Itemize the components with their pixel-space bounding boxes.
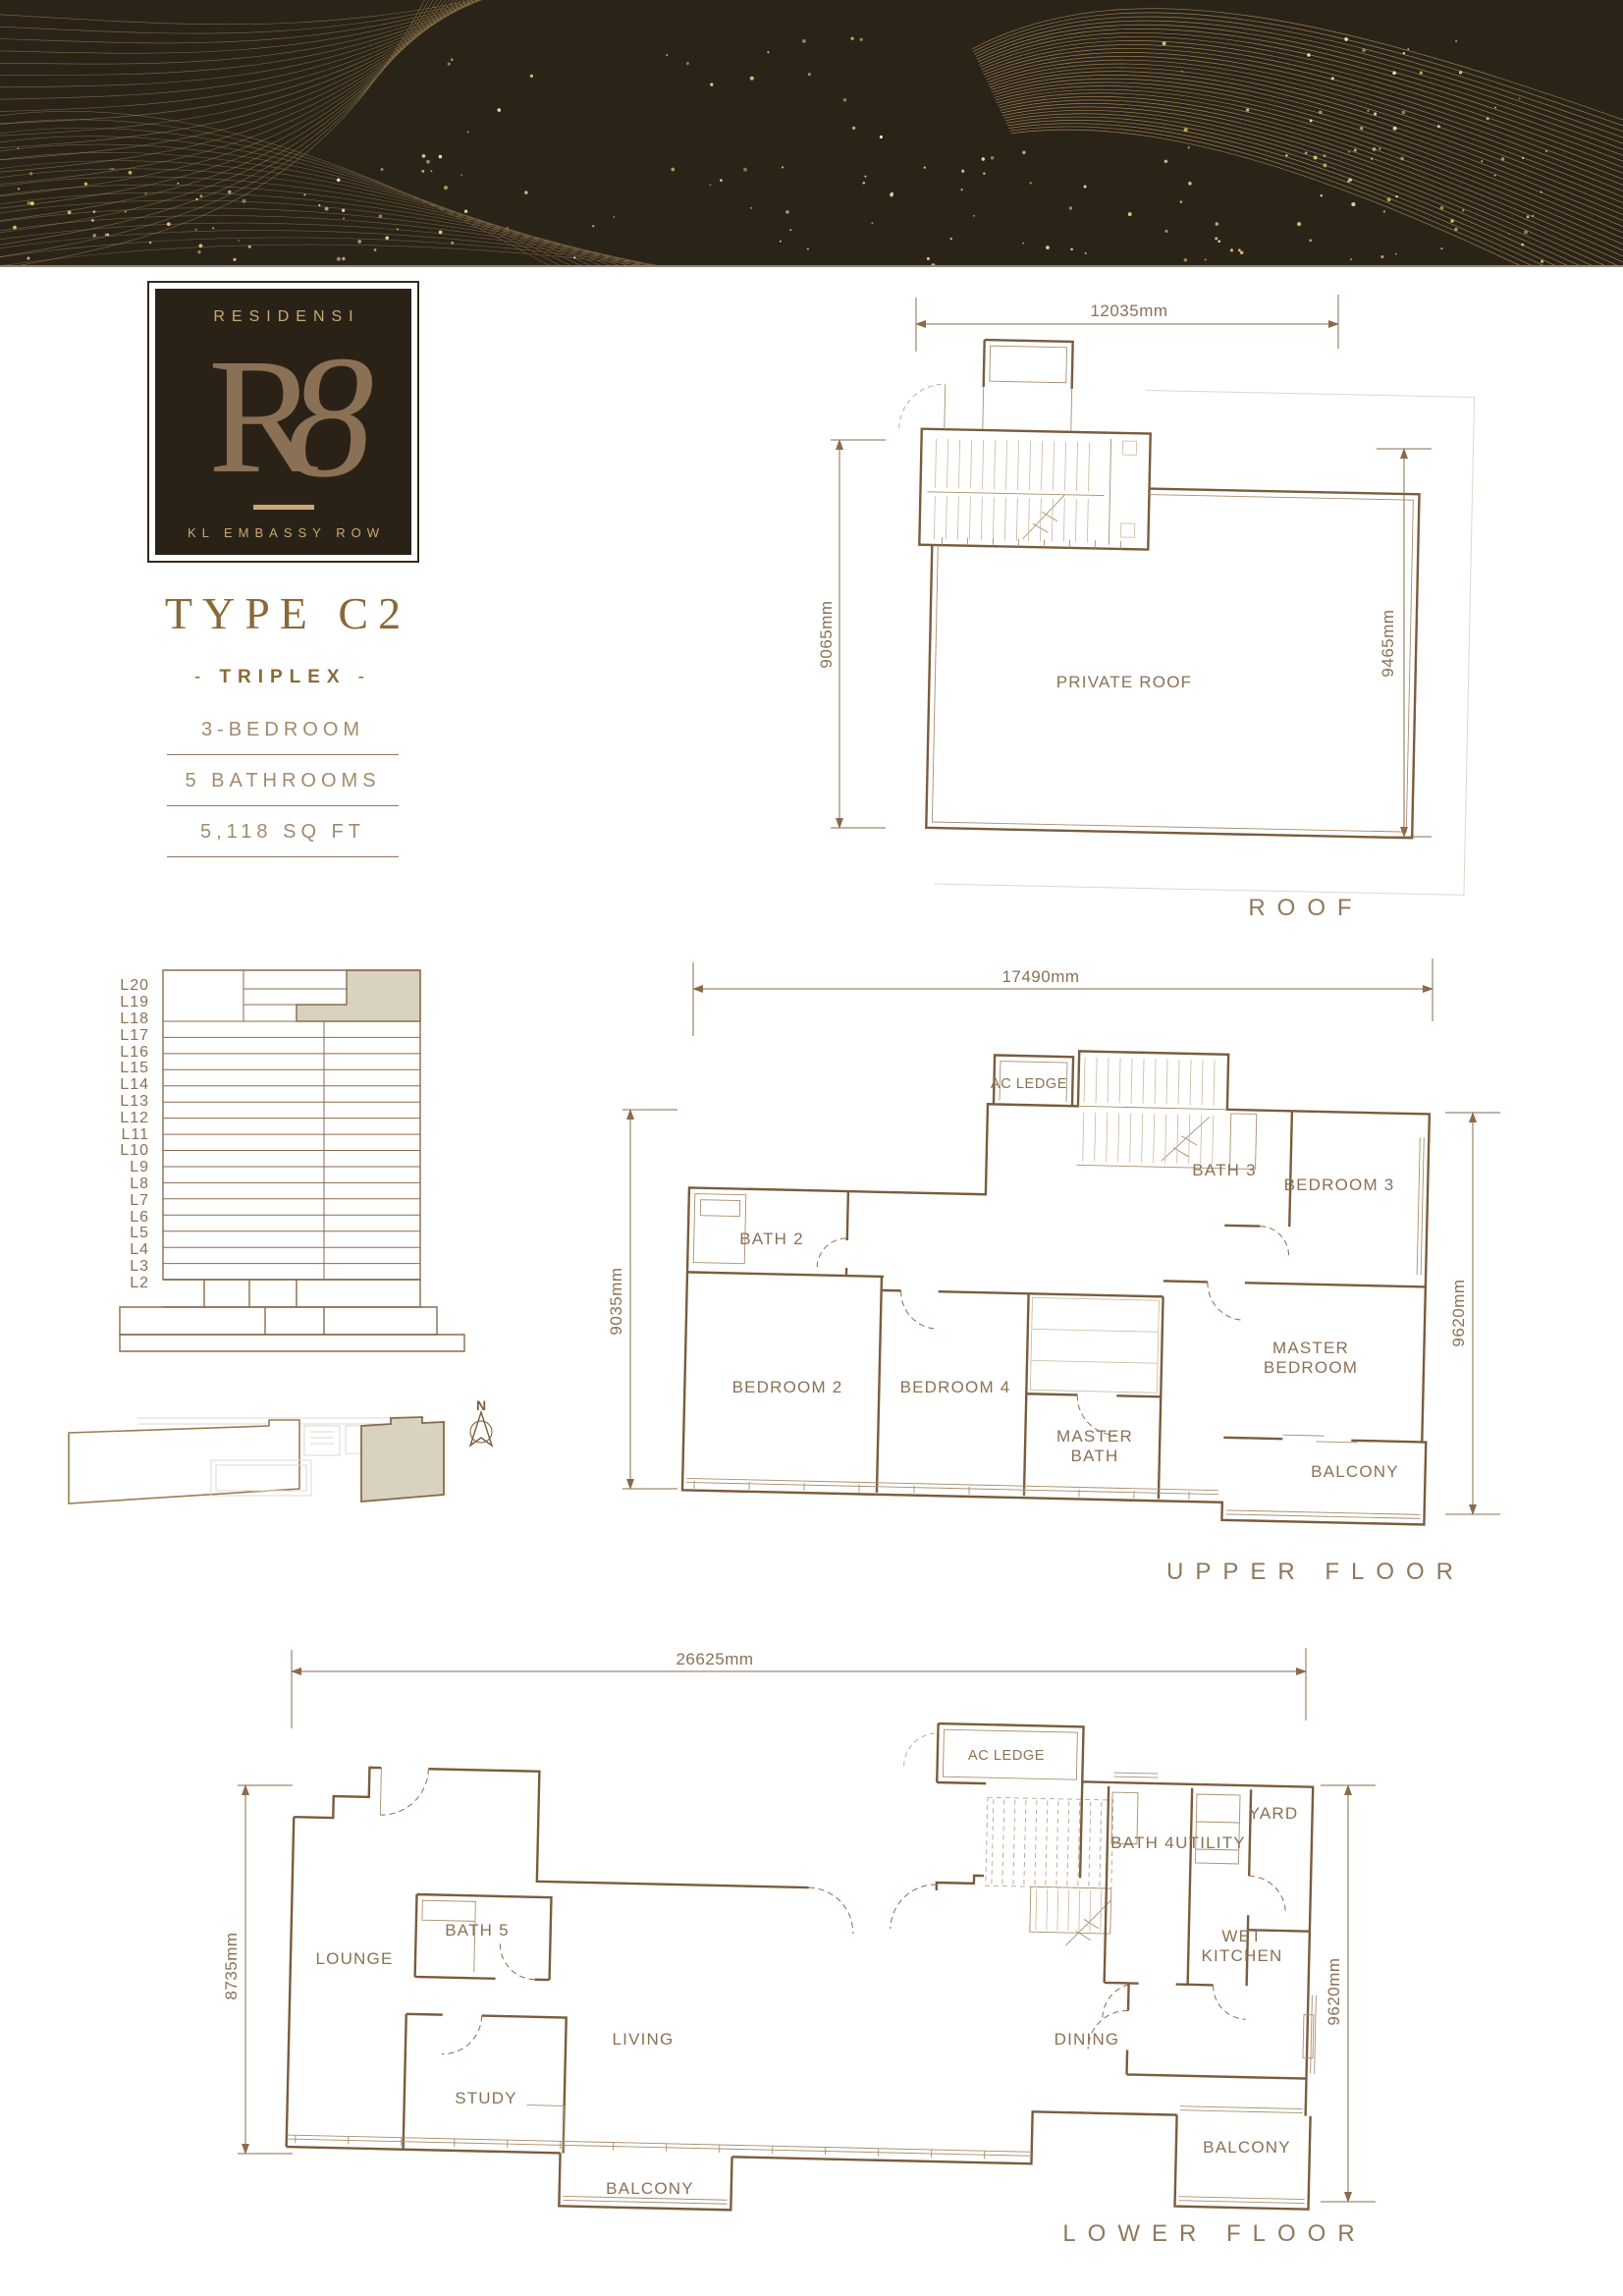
dim-roof-left: 9065mm bbox=[817, 600, 836, 668]
level-label: L3 bbox=[130, 1258, 149, 1275]
room-label: AC LEDGE bbox=[968, 1748, 1045, 1764]
dim-lower-top: 26625mm bbox=[676, 1650, 753, 1668]
room-label: BATH 5 bbox=[445, 1921, 509, 1940]
level-label: L2 bbox=[130, 1275, 149, 1291]
level-label: L6 bbox=[130, 1209, 149, 1226]
room-label: WET bbox=[1221, 1927, 1262, 1945]
dim-upper-left: 9035mm bbox=[607, 1267, 625, 1335]
level-label: L14 bbox=[120, 1076, 149, 1093]
level-label: L9 bbox=[130, 1159, 149, 1175]
dim-upper-right: 9620mm bbox=[1449, 1279, 1468, 1346]
level-label: L11 bbox=[121, 1126, 149, 1143]
floor-title-roof: ROOF bbox=[1248, 895, 1363, 921]
dim-roof-right: 9465mm bbox=[1379, 609, 1397, 677]
room-label: AC LEDGE bbox=[991, 1076, 1067, 1092]
stack-highlight-shape bbox=[297, 970, 420, 1021]
room-label-private-roof: PRIVATE ROOF bbox=[1056, 673, 1192, 691]
level-label: L17 bbox=[120, 1027, 149, 1044]
room-label: BATH 4 bbox=[1110, 1833, 1174, 1852]
floor-title-lower: LOWER FLOOR bbox=[1062, 2220, 1366, 2247]
brochure-page: RESIDENSI R 8 KL EMBASSY ROW TYPE C2 -TR… bbox=[0, 0, 1623, 2296]
level-label: L16 bbox=[120, 1044, 149, 1061]
room-label: BATH 3 bbox=[1192, 1161, 1256, 1179]
room-label: MASTER bbox=[1272, 1339, 1349, 1357]
room-label: DINING bbox=[1055, 2030, 1120, 2049]
level-label: L13 bbox=[120, 1093, 149, 1110]
lower-dimensions: 26625mm 8735mm 9620mm bbox=[222, 1648, 1376, 2202]
upper-floor-drawing bbox=[682, 1042, 1435, 1524]
floorplan-canvas: L20 L19 L18 L17 L16 L15 L14 L13 L12 L11 … bbox=[0, 0, 1623, 2296]
north-arrow: N bbox=[470, 1397, 492, 1446]
room-label: BATH 2 bbox=[739, 1230, 803, 1248]
level-stack-diagram: L20 L19 L18 L17 L16 L15 L14 L13 L12 L11 … bbox=[120, 970, 464, 1351]
dim-roof-top: 12035mm bbox=[1090, 301, 1167, 320]
room-label: BALCONY bbox=[606, 2179, 694, 2198]
floor-title-upper: UPPER FLOOR bbox=[1166, 1558, 1465, 1585]
level-label: L8 bbox=[130, 1175, 149, 1192]
roof-dimensions: 12035mm 9065mm 9465mm bbox=[817, 295, 1432, 837]
lower-floor-drawing bbox=[285, 1709, 1322, 2223]
room-label: BALCONY bbox=[1311, 1462, 1399, 1481]
level-label: L19 bbox=[120, 994, 149, 1011]
level-label: L20 bbox=[120, 977, 149, 994]
level-label: L12 bbox=[120, 1110, 149, 1126]
room-label: STUDY bbox=[455, 2089, 517, 2107]
room-label: BEDROOM 2 bbox=[732, 1378, 843, 1396]
level-label: L18 bbox=[120, 1011, 149, 1027]
room-label: KITCHEN bbox=[1201, 1946, 1282, 1965]
room-label: BALCONY bbox=[1203, 2138, 1291, 2157]
room-label: BATH bbox=[1071, 1447, 1119, 1465]
room-label: BEDROOM 3 bbox=[1284, 1175, 1395, 1194]
level-label: L4 bbox=[130, 1241, 149, 1258]
room-label: YARD bbox=[1249, 1804, 1299, 1823]
key-plan-highlight-unit bbox=[361, 1417, 444, 1502]
dim-lower-left: 8735mm bbox=[222, 1932, 241, 1999]
room-label: LOUNGE bbox=[316, 1949, 394, 1968]
level-label: L7 bbox=[130, 1192, 149, 1209]
room-label: UTILITY bbox=[1175, 1833, 1246, 1852]
dim-lower-right: 9620mm bbox=[1325, 1957, 1343, 2025]
room-label: LIVING bbox=[613, 2030, 675, 2049]
dim-upper-top: 17490mm bbox=[1001, 967, 1079, 986]
level-label: L5 bbox=[130, 1225, 149, 1241]
level-label: L10 bbox=[120, 1142, 149, 1159]
room-label: BEDROOM bbox=[1264, 1358, 1358, 1377]
level-label: L15 bbox=[120, 1060, 149, 1076]
room-label: MASTER bbox=[1056, 1427, 1133, 1446]
key-plan bbox=[69, 1417, 444, 1503]
room-label: BEDROOM 4 bbox=[900, 1378, 1011, 1396]
